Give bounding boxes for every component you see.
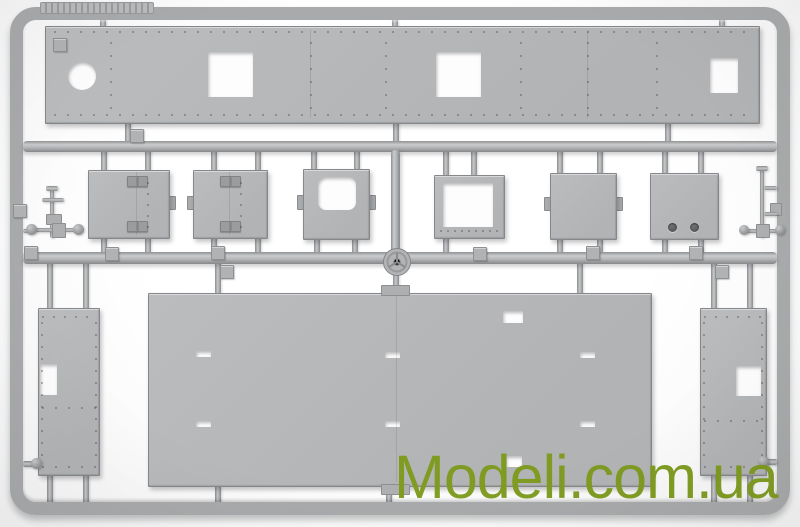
rivet [240,193,242,195]
rivet [310,42,312,44]
rivet [385,107,387,109]
rivet [457,114,459,116]
part-lever-right-arm [764,186,777,190]
rivet [249,31,251,33]
rivet [110,55,112,57]
part-lever-right-tip [756,166,768,171]
rivet [81,466,83,468]
rivet [704,114,706,116]
floor-plate-slot [580,421,595,427]
part-lever-left-crossbar [42,198,64,202]
rivet [327,31,329,33]
rivet [385,68,387,70]
rivet [444,31,446,33]
rivet [457,31,459,33]
rivet [418,114,420,116]
rivet [236,31,238,33]
rivet [509,114,511,116]
rivet [405,114,407,116]
rivet [110,107,112,109]
rivet [262,114,264,116]
rivet [418,31,420,33]
rivet [743,114,745,116]
rivet [210,31,212,33]
rivet [240,215,242,217]
part-lever-right-coupling [756,224,770,238]
rivet [548,114,550,116]
rivet [717,420,719,422]
rivet [184,31,186,33]
rivet [95,418,97,420]
rivet [385,42,387,44]
top-plate-square-hole-3 [710,58,738,93]
rivet [522,31,524,33]
rivet [41,370,43,372]
rivet [95,358,97,360]
rivet [41,442,43,444]
rivet [587,31,589,33]
rivet [197,114,199,116]
rivet [470,114,472,116]
rivet [717,31,719,33]
rivet [184,114,186,116]
rivet [67,31,69,33]
rivet [431,114,433,116]
rivet [147,226,149,228]
rivet [55,466,57,468]
rivet [652,31,654,33]
rivet [366,31,368,33]
rivet [110,68,112,70]
rivet [656,81,658,83]
rivet [444,114,446,116]
rivet [703,322,705,324]
rivet [730,31,732,33]
rivet [385,55,387,57]
rivet [761,346,763,348]
rivet [703,394,705,396]
rivet [520,107,522,109]
rivet [431,31,433,33]
rivet [574,31,576,33]
rivet [520,55,522,57]
rivet [703,430,705,432]
rivet [496,114,498,116]
rivet [41,334,43,336]
frame-opening-hole [443,183,493,227]
rivet [95,334,97,336]
rivet [95,406,97,408]
rivet [340,31,342,33]
part-number-tag [689,246,703,260]
rivet [41,322,43,324]
rivet [665,31,667,33]
rivet [223,114,225,116]
rivet [119,31,121,33]
hatch-2-hinge [220,221,241,232]
rivet [759,316,761,318]
rivet [385,94,387,96]
rivet [147,193,149,195]
rivet [626,114,628,116]
rivet [522,114,524,116]
rivet [41,346,43,348]
rivet [95,454,97,456]
rivet [147,204,149,206]
rivet [310,107,312,109]
rivet [703,346,705,348]
rivet [737,316,739,318]
rivet [310,94,312,96]
rivet [310,81,312,83]
rivet [80,114,82,116]
rivet [703,334,705,336]
rivet [520,68,522,70]
rivet [691,31,693,33]
rivet [327,114,329,116]
rivet [275,114,277,116]
rivet [42,316,44,318]
rivet [574,114,576,116]
rivet [639,31,641,33]
rivet [392,114,394,116]
rivet [730,420,732,422]
rivet [340,114,342,116]
floor-plate-gate-ledge [381,285,410,296]
rivet [147,215,149,217]
rivet [703,418,705,420]
rivet [240,204,242,206]
rivet [704,420,706,422]
rivet [158,31,160,33]
rivet [756,420,758,422]
rivet [703,370,705,372]
rivet [447,230,449,232]
rivet [353,31,355,33]
part-number-tag [24,246,38,260]
rivet [656,55,658,57]
rivet [41,454,43,456]
rivet [223,31,225,33]
rivet [761,382,763,384]
rivet [379,31,381,33]
rivet [95,442,97,444]
part-round-cap [382,247,412,277]
rivet [385,81,387,83]
rivet [366,114,368,116]
rivet [656,68,658,70]
rivet [314,31,316,33]
rivet [613,31,615,33]
rivet [489,230,491,232]
viewport-opening [318,177,356,210]
floor-plate-slot [196,351,211,357]
hatch-1-hinge [127,221,148,232]
rivet [600,114,602,116]
rivet [509,31,511,33]
rivet [132,31,134,33]
rivet [310,55,312,57]
rivet [656,107,658,109]
rivet [42,466,44,468]
rivet [704,316,706,318]
rivet [106,31,108,33]
rivet [703,358,705,360]
panel-bolt-hole [668,223,677,232]
rivet [475,230,477,232]
part-number-tag [473,247,487,261]
rivet [656,42,658,44]
rivet [743,31,745,33]
part-top-hull-plate [45,26,760,124]
rivet [54,114,56,116]
rivet [600,31,602,33]
rivet [761,394,763,396]
rivet [95,346,97,348]
rivet [587,107,589,109]
rivet [587,81,589,83]
floor-plate-slot [196,421,211,427]
rivet [520,42,522,44]
rivet [119,114,121,116]
rivet [41,382,43,384]
part-lever-right-knob [739,225,749,235]
rivet [75,316,77,318]
rivet [106,114,108,116]
rivet [520,81,522,83]
rivet [482,230,484,232]
rivet [145,31,147,33]
side-panel-left-cutout [40,364,57,395]
part-number-tag [13,204,27,218]
rivet [171,31,173,33]
rivet [715,316,717,318]
rivet [314,114,316,116]
part-lever-left-knob [73,224,84,235]
rivet [94,466,96,468]
rivet [613,114,615,116]
rivet [95,382,97,384]
rivet [275,31,277,33]
top-plate-square-hole-1 [208,52,253,97]
rivet [703,406,705,408]
rivet [95,322,97,324]
rivet [761,370,763,372]
rivet [468,230,470,232]
rivet [236,114,238,116]
rivet [379,114,381,116]
rivet [730,114,732,116]
rivet [656,94,658,96]
rivet [53,316,55,318]
side-panel-right-cutout [736,366,761,396]
rivet [158,114,160,116]
rivet [535,31,537,33]
hatch-2-hinge [220,176,241,187]
rivet [145,114,147,116]
rivet [761,430,763,432]
rivet [761,418,763,420]
rivet [67,114,69,116]
rivet [110,81,112,83]
part-number-tag [211,246,225,260]
part-number-tag [715,265,729,279]
rivet [470,31,472,33]
gate-side-left-knob [31,458,42,469]
rivet [132,114,134,116]
rivet [561,31,563,33]
part-lever-left-coupling [52,223,66,238]
floor-plate-slot [385,421,400,427]
part-plain-panel [550,173,617,240]
part-number-tag [220,265,234,279]
rivet [353,114,355,116]
top-plate-round-hole [68,62,96,90]
rivet [81,407,83,409]
top-plate-square-hole-2 [436,52,481,97]
rivet [301,31,303,33]
part-number-tag [130,129,144,143]
rivet [587,114,589,116]
rivet [496,230,498,232]
part-lever-right-knob [775,225,785,235]
mold-number-tab [40,2,154,14]
rivet [41,430,43,432]
rivet [240,182,242,184]
rivet [743,420,745,422]
rivet [483,114,485,116]
rivet [68,466,70,468]
rivet [587,68,589,70]
rivet [240,226,242,228]
rivet [440,230,442,232]
rivet [110,94,112,96]
rivet [95,430,97,432]
runner-center-vertical [391,150,400,254]
rivet [405,31,407,33]
rivet [197,31,199,33]
floor-plate-slot [385,352,400,358]
watermark: Modeli.com.ua [394,447,778,508]
rivet [652,114,654,116]
rivet [41,406,43,408]
rivet [110,42,112,44]
part-number-tag [105,247,119,261]
rivet [703,382,705,384]
panel-bolt-hole [690,223,699,232]
rivet [95,394,97,396]
rivet [678,31,680,33]
rivet [748,316,750,318]
rivet [95,370,97,372]
rivet [496,31,498,33]
rivet [665,114,667,116]
rivet [761,334,763,336]
part-lever-right-arm [764,212,777,216]
rivet [392,31,394,33]
rivet [691,114,693,116]
rivet [626,31,628,33]
rivet [288,114,290,116]
rivet [587,94,589,96]
part-lever-left-knob [26,224,37,235]
part-number-tag [586,246,600,260]
rivet [54,31,56,33]
rivet [726,316,728,318]
rivet [301,114,303,116]
rivet [548,31,550,33]
part-lever-left-tip [46,186,58,191]
rivet [520,94,522,96]
rivet [41,418,43,420]
rivet [454,230,456,232]
floor-plate-slot [580,352,595,358]
rivet [41,358,43,360]
rivet [761,322,763,324]
part-panel-two-holes [650,173,719,240]
rivet [483,31,485,33]
rivet [587,55,589,57]
rivet [93,31,95,33]
rivet [561,114,563,116]
rivet [55,407,57,409]
rivet [80,31,82,33]
part-number-tag [53,38,67,52]
rivet [761,406,763,408]
floor-plate-slot [503,311,523,323]
rivet [761,358,763,360]
sprue-photo: Modeli.com.ua [0,0,800,527]
rivet [147,182,149,184]
rivet [64,316,66,318]
rivet [288,31,290,33]
rivet [262,31,264,33]
rivet [639,114,641,116]
rivet [717,114,719,116]
hatch-1-hinge [127,176,148,187]
rivet [704,31,706,33]
rivet [93,114,95,116]
rivet [68,407,70,409]
rivet [171,114,173,116]
rivet [461,230,463,232]
rivet [210,114,212,116]
rivet [86,316,88,318]
rivet [249,114,251,116]
rivet [41,394,43,396]
rivet [535,114,537,116]
rivet [678,114,680,116]
rivet [310,68,312,70]
rivet [587,42,589,44]
